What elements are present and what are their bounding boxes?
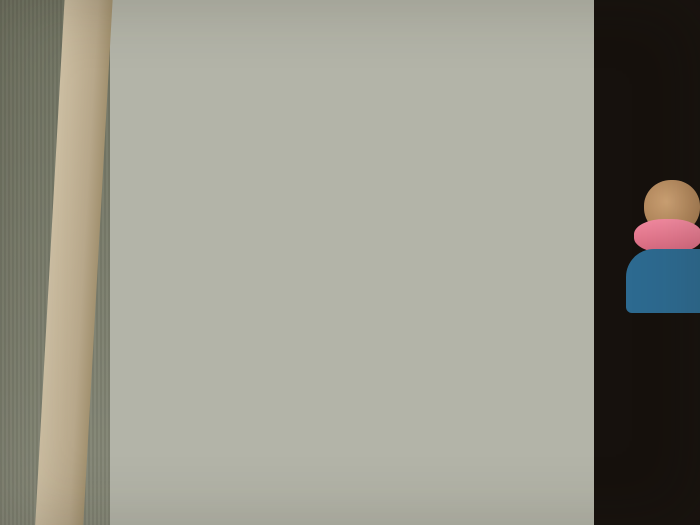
pink-shoe (634, 219, 700, 253)
blue-fabric (626, 249, 700, 313)
photo-of-site-plan: ✻ CALLE GUILLERMINA MEDRANO CALLE GUILLE… (0, 0, 700, 525)
dark-background (594, 0, 700, 525)
